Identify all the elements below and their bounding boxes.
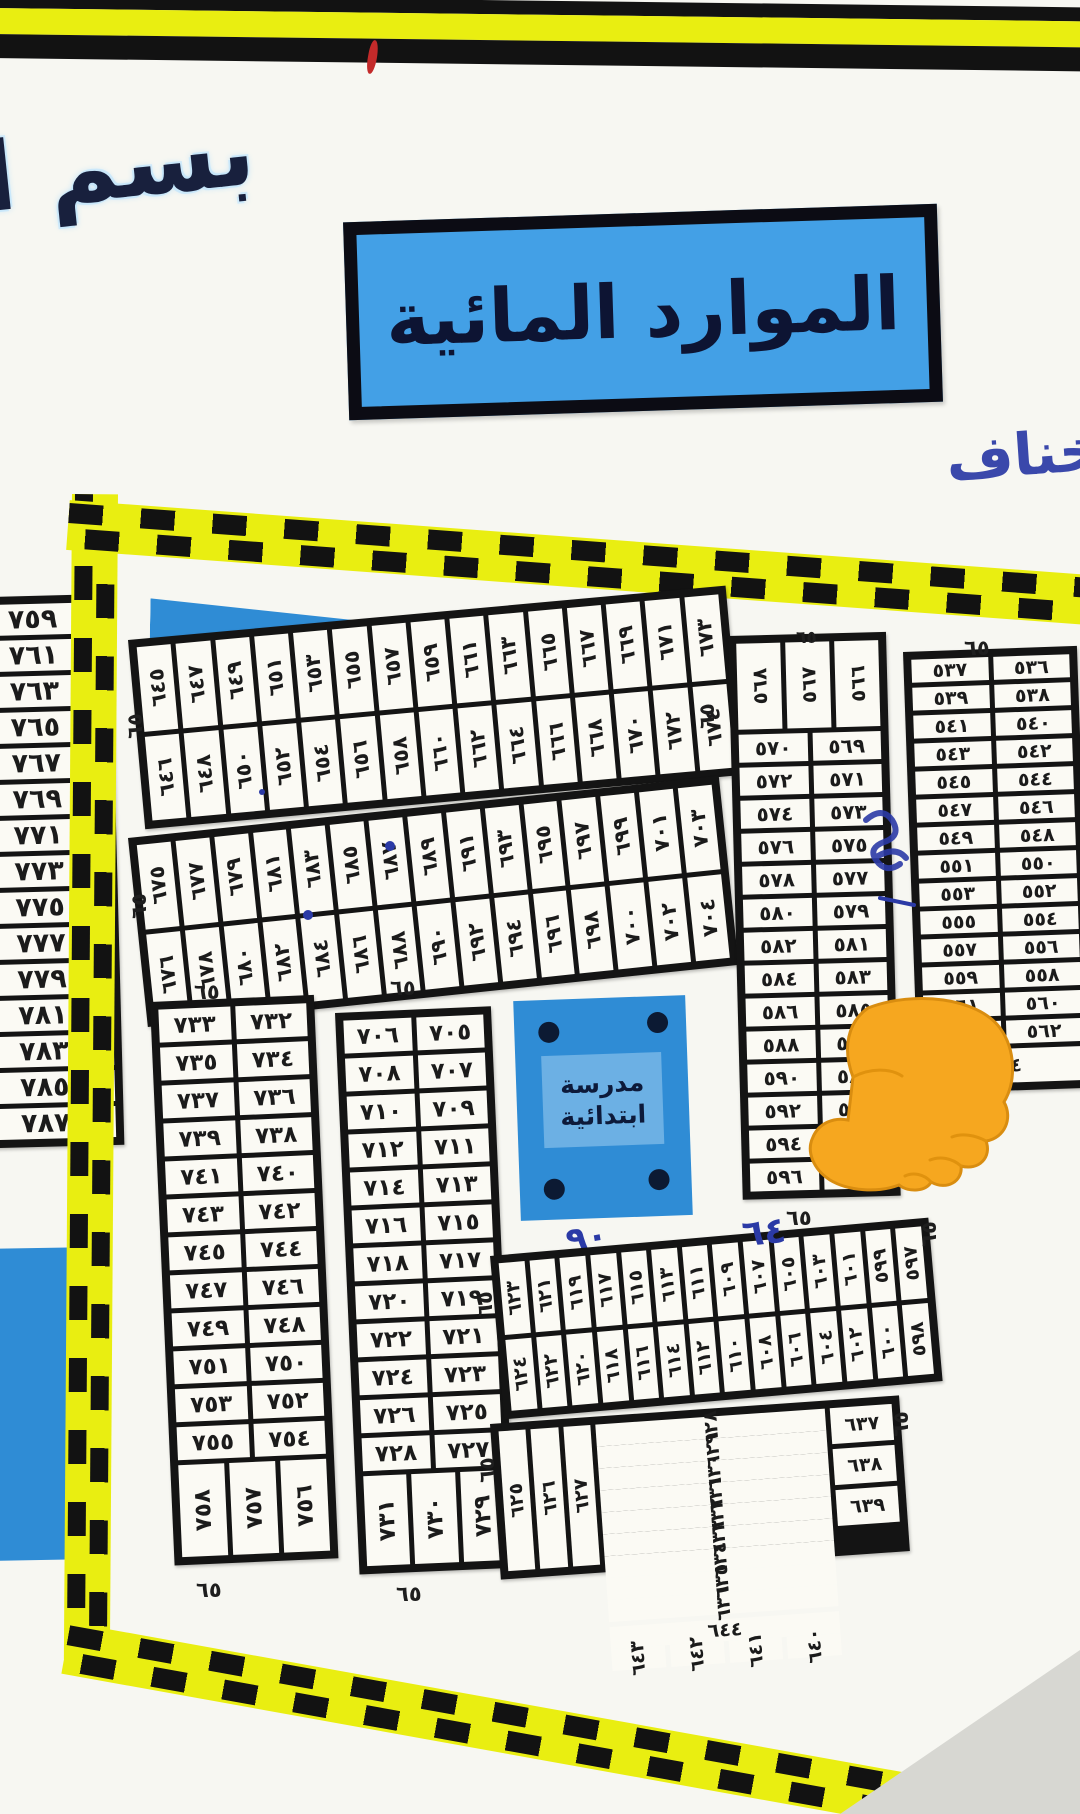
plot-cell: ٥٤٢ [996, 738, 1073, 764]
plot-cell: ٧٣٥ [160, 1044, 233, 1080]
pointing-hand-icon [780, 970, 1040, 1200]
plot-cell: ٦٥٠ [223, 726, 265, 813]
plot-cell: ٧٥٣ [175, 1386, 248, 1422]
plot-cell: ٧١٣ [422, 1166, 491, 1202]
plot-cell: ٧٤٦ [246, 1269, 319, 1305]
plot-cell: ٦٠٢ [841, 1308, 873, 1381]
plot-cell: ٦٨٩ [407, 813, 450, 901]
plot-cell: ٧٤٥ [168, 1234, 241, 1270]
plot-cell: ٥٥١ [918, 853, 995, 879]
plot-cell: ٦٨٦ [339, 910, 382, 998]
plot-cell: ٧٥٠ [250, 1345, 323, 1381]
plot-cell: ٧٠٤ [687, 874, 730, 962]
plot-cell: ٧١٥ [424, 1204, 493, 1240]
plot-cell: ٦٠١ [834, 1232, 866, 1305]
plot-cell: ٥٨١ [817, 929, 886, 959]
plot-cell: ٥٧٦ [741, 832, 810, 862]
ink-annotation-64: ٦٤ [740, 1210, 788, 1255]
plot-cell: ٦١٧ [590, 1253, 622, 1326]
plot-cell: ٦٧٩ [214, 833, 257, 921]
plot-cell: ٦٦٥ [528, 609, 570, 696]
plot-cell: ٥٤٥ [915, 769, 992, 795]
plot-cell: ٦٤١ [728, 1637, 783, 1663]
plot-cell: ٦٥٥ [332, 626, 374, 713]
corner-dot [647, 1012, 669, 1034]
plot-row: ٧٥٨٧٥٧٧٥٦ [178, 1459, 330, 1557]
plot-cell: ٧٥١ [173, 1348, 246, 1384]
plot-cell: ٦٦٦ [536, 698, 578, 785]
plot-cell: ٦٩٢ [455, 898, 498, 986]
top-border-tape [0, 0, 1080, 71]
plot-cell: ٥٣٦ [993, 654, 1070, 680]
plot-block-732-758: ٧٣٣٧٣٥٧٣٧٧٣٩٧٤١٧٤٣٧٤٥٧٤٧٧٤٩٧٥١٧٥٣٧٥٥ ٧٣٢… [150, 995, 338, 1566]
plot-cell: ٦٥٨ [379, 712, 421, 799]
street-label: ٦٥ [695, 703, 719, 729]
plot-cell: ٧٢٨ [362, 1435, 431, 1471]
handwritten-annotation: تخناف [943, 414, 1080, 494]
plot-row: ٥٦٨٥٦٧٥٦٦ [736, 640, 880, 730]
plot-cell: ٧٣٢ [235, 1003, 308, 1039]
plot-cell: ٧٥٨ [178, 1463, 228, 1557]
street-label: ٦٥ [964, 636, 990, 660]
plot-cell: ٦١٨ [597, 1329, 629, 1402]
title-text: الموارد المائية [385, 261, 902, 363]
plot-cell: ٦٨٧ [369, 817, 412, 905]
plot-cell: ٦٧١ [645, 598, 687, 685]
plot-cell: ٥٨٠ [743, 898, 812, 928]
corner-dot [543, 1178, 565, 1200]
title-banner: الموارد المائية [343, 204, 943, 421]
plot-cell: ٦٣٧ [830, 1404, 894, 1444]
plot-cell: ٧٤٢ [243, 1193, 316, 1229]
plot-cell: ٧٣٠ [412, 1472, 459, 1564]
school-block: مدرسة ابتدائية [513, 995, 693, 1221]
plot-cell: ٦٩٨ [571, 886, 614, 974]
street-label: ٦٥ [917, 1221, 941, 1247]
plot-cell: ٦٠٤ [811, 1311, 843, 1384]
street-label: ٦٥ [127, 893, 151, 919]
plot-cell: ٧٣٤ [236, 1041, 309, 1077]
plot-cell: ٥٦٨ [736, 643, 782, 730]
plot-cell: ٦٨٢ [262, 918, 305, 1006]
plot-cell: ٥٩٩ [865, 1229, 897, 1302]
plot-cell: ٦٨٣ [291, 825, 334, 913]
plot-cell: ٥٤١ [913, 713, 990, 739]
plot-cell: ٧٤١ [165, 1158, 238, 1194]
plot-cell: ٧٠٨ [345, 1056, 414, 1092]
plot-cell: ٧٠١ [639, 789, 682, 877]
plot-cell: ٦٤٨ [184, 730, 226, 817]
plot-cell: ٥٧٥ [815, 830, 884, 860]
street-label: ٦٥ [196, 1578, 222, 1602]
plot-cell: ٥٤٠ [995, 710, 1072, 736]
plot-cell: ٥٤٨ [999, 822, 1076, 848]
plot-cell: ٥٧١ [813, 764, 882, 794]
plot-cell: ٦٠٦ [780, 1313, 812, 1386]
plot-cell: ٧٥٥ [177, 1424, 250, 1460]
plot-cell: ٧٣٧ [162, 1082, 235, 1118]
plot-cell: ٦٩٧ [562, 797, 605, 885]
plot-cell: ٦٨١ [253, 829, 296, 917]
plot-cell: ٦١٦ [627, 1327, 659, 1400]
plot-cell: ٧٣٩ [163, 1120, 236, 1156]
plot-cell: ٦١٢ [688, 1321, 720, 1394]
plot-cell: ٦٠٣ [804, 1234, 836, 1307]
plot-cell: ٧٠٧ [417, 1053, 486, 1089]
plot-cell: ٧٤٨ [248, 1307, 321, 1343]
plot-cell: ٧٢٠ [355, 1283, 424, 1319]
plot-cell: ٦٢٢ [536, 1335, 568, 1408]
plot-cell: ٦٦٣ [489, 612, 531, 699]
plot-cell: ٦٤٠ [787, 1633, 842, 1659]
plot-cell: ٦٩٤ [494, 894, 537, 982]
plot-cell: ٧٢٦ [360, 1397, 429, 1433]
plot-cell: ٥٦٧ [785, 641, 831, 728]
bismillah-text: بسم ا [0, 92, 307, 235]
plot-cell: ٧٠٣ [678, 785, 721, 873]
plot-cell: ٥٧٧ [816, 863, 885, 893]
plot-cell: ٥٦٩ [812, 731, 881, 761]
plot-cell: ٦٤٢ [670, 1641, 725, 1667]
street-label: ٦٥ [796, 628, 817, 648]
plot-column: ٧٣٣٧٣٥٧٣٧٧٣٩٧٤١٧٤٣٧٤٥٧٤٧٧٤٩٧٥١٧٥٣٧٥٥ [158, 1007, 249, 1461]
plot-cell: ٧١٨ [353, 1245, 422, 1281]
plot-cell: ٦١١ [682, 1245, 714, 1318]
plot-cell: ٦١٣ [651, 1248, 683, 1321]
plot-cell: ٥٧٩ [816, 896, 885, 926]
school-label-line2: ابتدائية [560, 1099, 647, 1134]
plot-cell: ٦٢٣ [499, 1261, 531, 1334]
plot-cell: ٧١١ [421, 1128, 490, 1164]
plot-cell: ٧٤٠ [241, 1155, 314, 1191]
plot-cell: ٦٦٠ [419, 708, 461, 795]
plot-cell: ٥٨٢ [744, 931, 813, 961]
plot-cell: ٦١٤ [658, 1324, 690, 1397]
plot-row: ٧٣١٧٣٠٧٢٩ [363, 1470, 507, 1566]
plot-cell: ٥٤٦ [998, 794, 1075, 820]
plot-cell: ٦٦١ [450, 616, 492, 703]
plot-cell: ٥٧٠ [739, 733, 808, 763]
plot-cell: ٧٢٣ [431, 1356, 500, 1392]
plot-cell: ٦٤٣ [611, 1645, 666, 1671]
plot-cell: ٧٢٤ [358, 1359, 427, 1395]
plot-cell: ٥٥٣ [919, 881, 996, 907]
plot-strip-597-624: ٦٢٣٦٢١٦١٩٦١٧٦١٥٦١٣٦١١٦٠٩٦٠٧٦٠٥٦٠٣٦٠١٥٩٩٥… [490, 1218, 943, 1420]
left-border-tape [64, 494, 118, 1659]
plot-cell: ٥٣٩ [912, 685, 989, 711]
plot-column: ٧٠٥٧٠٧٧٠٩٧١١٧١٣٧١٥٧١٧٧١٩٧٢١٧٢٣٧٢٥٧٢٧ [416, 1015, 503, 1469]
plot-cell: ٦٢٦ [531, 1427, 568, 1569]
plot-cell: ٦٤٩ [215, 637, 257, 724]
plot-cell: ٦٦٧ [567, 605, 609, 692]
plot-cell: ٦٩٥ [523, 801, 566, 889]
plot-cell: ٦٤٧ [176, 641, 218, 728]
plot-cell: ٧٤٣ [167, 1196, 240, 1232]
plot-cell: ٥٤٩ [917, 825, 994, 851]
plot-column: ٧٣٢٧٣٤٧٣٦٧٣٨٧٤٠٧٤٢٧٤٤٧٤٦٧٤٨٧٥٠٧٥٢٧٥٤ [235, 1003, 326, 1457]
plot-cell: ٧٤٤ [245, 1231, 318, 1267]
plot-cell: ٥٤٤ [997, 766, 1074, 792]
plot-cell: ٦٢٥ [499, 1430, 536, 1572]
plot-cell: ٥٧٢ [739, 766, 808, 796]
street-label: ٦٥ [390, 976, 416, 1000]
plot-cell: ٦٨٥ [330, 821, 373, 909]
plot-cell: ٧٠٩ [419, 1090, 488, 1126]
plot-cell: ٥٥٢ [1001, 878, 1078, 904]
plot-cell: ٦٣٩ [835, 1486, 899, 1526]
plot-cell: ٧٠٦ [343, 1018, 412, 1054]
street-label: ٦٥ [473, 1291, 497, 1317]
plot-cell: ٦٦٩ [606, 601, 648, 688]
plot-cell: ٧٣١ [363, 1474, 410, 1566]
plot-cell: ٧٣٨ [240, 1117, 313, 1153]
plot-row: ٦٢٥٦٢٦٦٢٧ [499, 1425, 601, 1571]
plot-cell: ٧٣٦ [238, 1079, 311, 1115]
plot-cell: ٧٥٦ [280, 1459, 330, 1553]
plot-cell: ٦٩١ [446, 809, 489, 897]
street-label: ٦٥ [396, 1582, 422, 1606]
page-shadow [840, 1650, 1080, 1814]
plot-cell: ٦٧٢ [653, 687, 695, 774]
plot-cell: ٦٥٦ [340, 715, 382, 802]
plot-cell: ٦٢٠ [566, 1332, 598, 1405]
plot-cell: ٦٩٦ [533, 890, 576, 978]
plot-cell: ٥٣٨ [994, 682, 1071, 708]
plot-cell: ٥٧٨ [742, 865, 811, 895]
plot-cell: ٦٩٩ [601, 793, 644, 881]
plot-cell: ٦٥٢ [262, 723, 304, 810]
plot-cell: ٦٦٤ [497, 701, 539, 788]
plot-row: ٦٢٨٦٢٩٦٣٠٦٣١٦٣٢٦٣٣٦٣٤٦٣٥٦٣٦ [595, 1409, 838, 1623]
plot-cell: ٦٠٨ [750, 1316, 782, 1389]
plot-cell: ٦٥٤ [301, 719, 343, 806]
plot-cell: ٦٥٩ [410, 619, 452, 706]
plot-cell: ٥٤٣ [914, 741, 991, 767]
plot-cell: ٧٠٥ [416, 1015, 485, 1051]
plot-cell: ٧٠٠ [610, 882, 653, 970]
plot-cell: ٦٥٣ [293, 630, 335, 717]
plot-cell: ٥٧٤ [740, 799, 809, 829]
plot-cell: ٥٥٥ [920, 909, 997, 935]
plot-cell: ٥٧٣ [814, 797, 883, 827]
plot-cell: ٦٩٣ [485, 805, 528, 893]
corner-dot [648, 1169, 670, 1191]
plot-cell: ٦٥١ [254, 633, 296, 720]
plot-map-photo: بسم ا الموارد المائية تخناف ٧٥٩٧٦١٧٦٣٧٦٥… [0, 0, 1080, 1814]
plot-cell: ٥٦٦ [834, 640, 880, 727]
plot-cell: ٧٥٧ [229, 1461, 279, 1555]
plot-cell: ٦٢١ [529, 1258, 561, 1331]
plot-cell: ٦٢٧ [563, 1425, 600, 1567]
plot-cell: ٥٥٧ [921, 937, 998, 963]
plot-cell: ٧١٢ [348, 1132, 417, 1168]
plot-cell: ٦٢٤ [505, 1337, 537, 1410]
plot-cell: ٧٤٩ [172, 1310, 245, 1346]
plot-cell: ٦١٠ [719, 1319, 751, 1392]
plot-cell: ٦١٩ [560, 1256, 592, 1329]
plot-cell: ٥٤٧ [916, 797, 993, 823]
plot-cell: ٥٥٠ [1000, 850, 1077, 876]
plot-cell: ٧٥٢ [251, 1383, 324, 1419]
plot-cell: ٥٣٧ [911, 657, 988, 683]
plot-cell: ٦٠٠ [872, 1305, 904, 1378]
plot-cell: ٧٤٧ [170, 1272, 243, 1308]
plot-cell: ٧٥٤ [253, 1421, 326, 1457]
plot-cell: ٧٠٢ [649, 878, 692, 966]
plot-cell: ٧١٠ [347, 1094, 416, 1130]
plot-cell: ٧١٤ [350, 1170, 419, 1206]
plot-cell: ٦٥٧ [371, 623, 413, 710]
plot-column: ٧٠٦٧٠٨٧١٠٧١٢٧١٤٧١٦٧١٨٧٢٠٧٢٢٧٢٤٧٢٦٧٢٨ [343, 1018, 430, 1472]
plot-cell: ٦٧٠ [614, 691, 656, 778]
plot-cell: ٧٣٣ [158, 1007, 231, 1043]
corner-dot [538, 1021, 560, 1043]
plot-cell: ٧٢١ [429, 1318, 498, 1354]
plot-strip-625-644: ٦٢٥٦٢٦٦٢٧ ٦٢٨٦٢٩٦٣٠٦٣١٦٣٢٦٣٣٦٣٤٦٣٥٦٣٦ ٦٤… [490, 1395, 910, 1579]
street-label: ٦٥ [194, 980, 220, 1004]
plot-cell: ٦٦٢ [458, 705, 500, 792]
plot-cell: ٥٩٨ [902, 1303, 934, 1376]
plot-cell: ٦٩٠ [417, 902, 460, 990]
school-label-line1: مدرسة [560, 1066, 645, 1101]
plot-cell: ٦٤٦ [145, 733, 187, 820]
plot-cell: ٦٧٣ [684, 594, 726, 681]
plot-cell: ٧١٦ [352, 1208, 421, 1244]
plot-cell: ٧٢٢ [357, 1321, 426, 1357]
plot-cell: ٦٧٧ [175, 838, 218, 926]
street-label: ٦٥ [475, 1457, 499, 1483]
plot-cell: ٦٣٨ [833, 1445, 897, 1485]
plot-cell: ٦٨٤ [301, 914, 344, 1002]
street-label: ٦٥ [889, 1411, 913, 1437]
plot-cell: ٥٥٤ [1002, 906, 1079, 932]
school-label: مدرسة ابتدائية [541, 1052, 664, 1148]
plot-cell: ٧١٧ [426, 1242, 495, 1278]
plot-cell: ٦١٥ [621, 1250, 653, 1323]
plot-cell: ٥٥٦ [1002, 934, 1079, 960]
plot-cell: ٦٠٩ [712, 1242, 744, 1315]
plot-cell: ٦٦٨ [575, 694, 617, 781]
street-label: ٦٥ [123, 713, 147, 739]
street-label: ٦٥ [786, 1206, 812, 1230]
